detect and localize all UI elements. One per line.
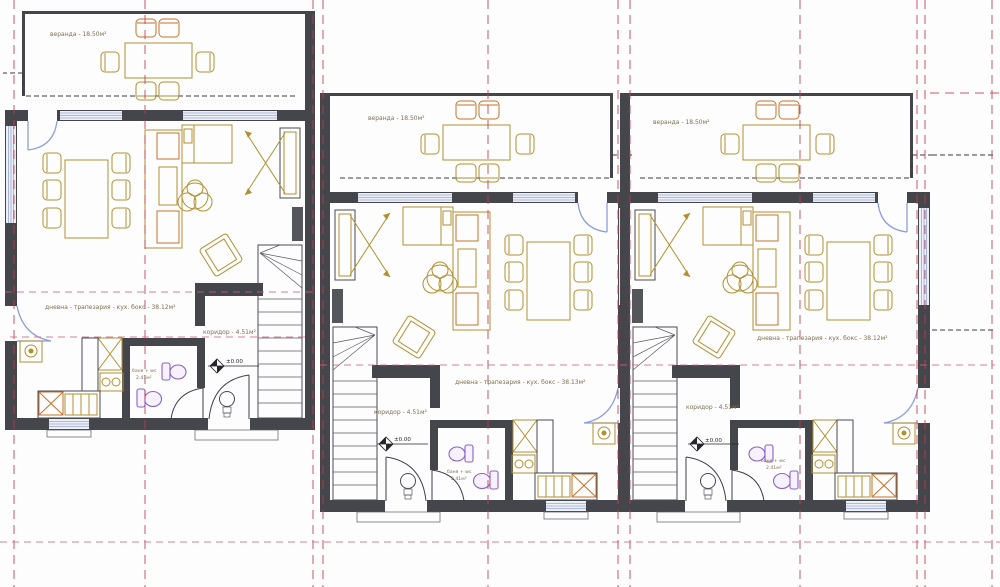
unit1-level-label: ±0.00: [226, 359, 243, 365]
unit-1-plan: [3, 11, 315, 440]
context-dashed-lines: [932, 155, 996, 330]
unit1-veranda-label: веранда - 18.50м²: [50, 31, 107, 38]
unit3-bath-area: 2.41м²: [766, 465, 782, 471]
unit2-veranda-label: веранда - 18.50м²: [368, 115, 425, 122]
unit3-corridor-label: коридор - 4.51м²: [686, 404, 739, 411]
unit2-living-label: дневна - трапезария - кух. бокс - 38.13м…: [455, 379, 586, 386]
unit-2-plan: [320, 93, 632, 522]
unit3-level-label: ±0.00: [705, 438, 722, 444]
unit2-bath-area: 2.41м²: [451, 476, 467, 482]
unit2-bath-label: баня + wc: [447, 469, 472, 475]
unit3-living-label: дневна - трапезария - кух. бокс - 38.12м…: [757, 335, 888, 342]
unit-3-plan: [620, 93, 932, 522]
unit1-bath-label: баня + wc: [132, 368, 157, 374]
unit1-bath-area: 2.41м²: [136, 375, 152, 381]
unit3-bath-label: баня + wc: [761, 458, 786, 464]
unit1-living-label: дневна - трапезария - кух. бокс - 38.12м…: [45, 304, 176, 311]
unit1-corridor-label: коридор - 4.51м²: [203, 329, 256, 336]
unit2-level-label: ±0.00: [394, 437, 411, 443]
unit2-corridor-label: коридор - 4.51м²: [374, 409, 427, 416]
grid-axes: [0, 0, 1000, 587]
floor-plan-canvas: веранда - 18.50м² дневна - трапезария - …: [0, 0, 1000, 587]
level-markers: [208, 359, 739, 451]
unit3-veranda-label: веранда - 18.50м²: [653, 119, 710, 126]
